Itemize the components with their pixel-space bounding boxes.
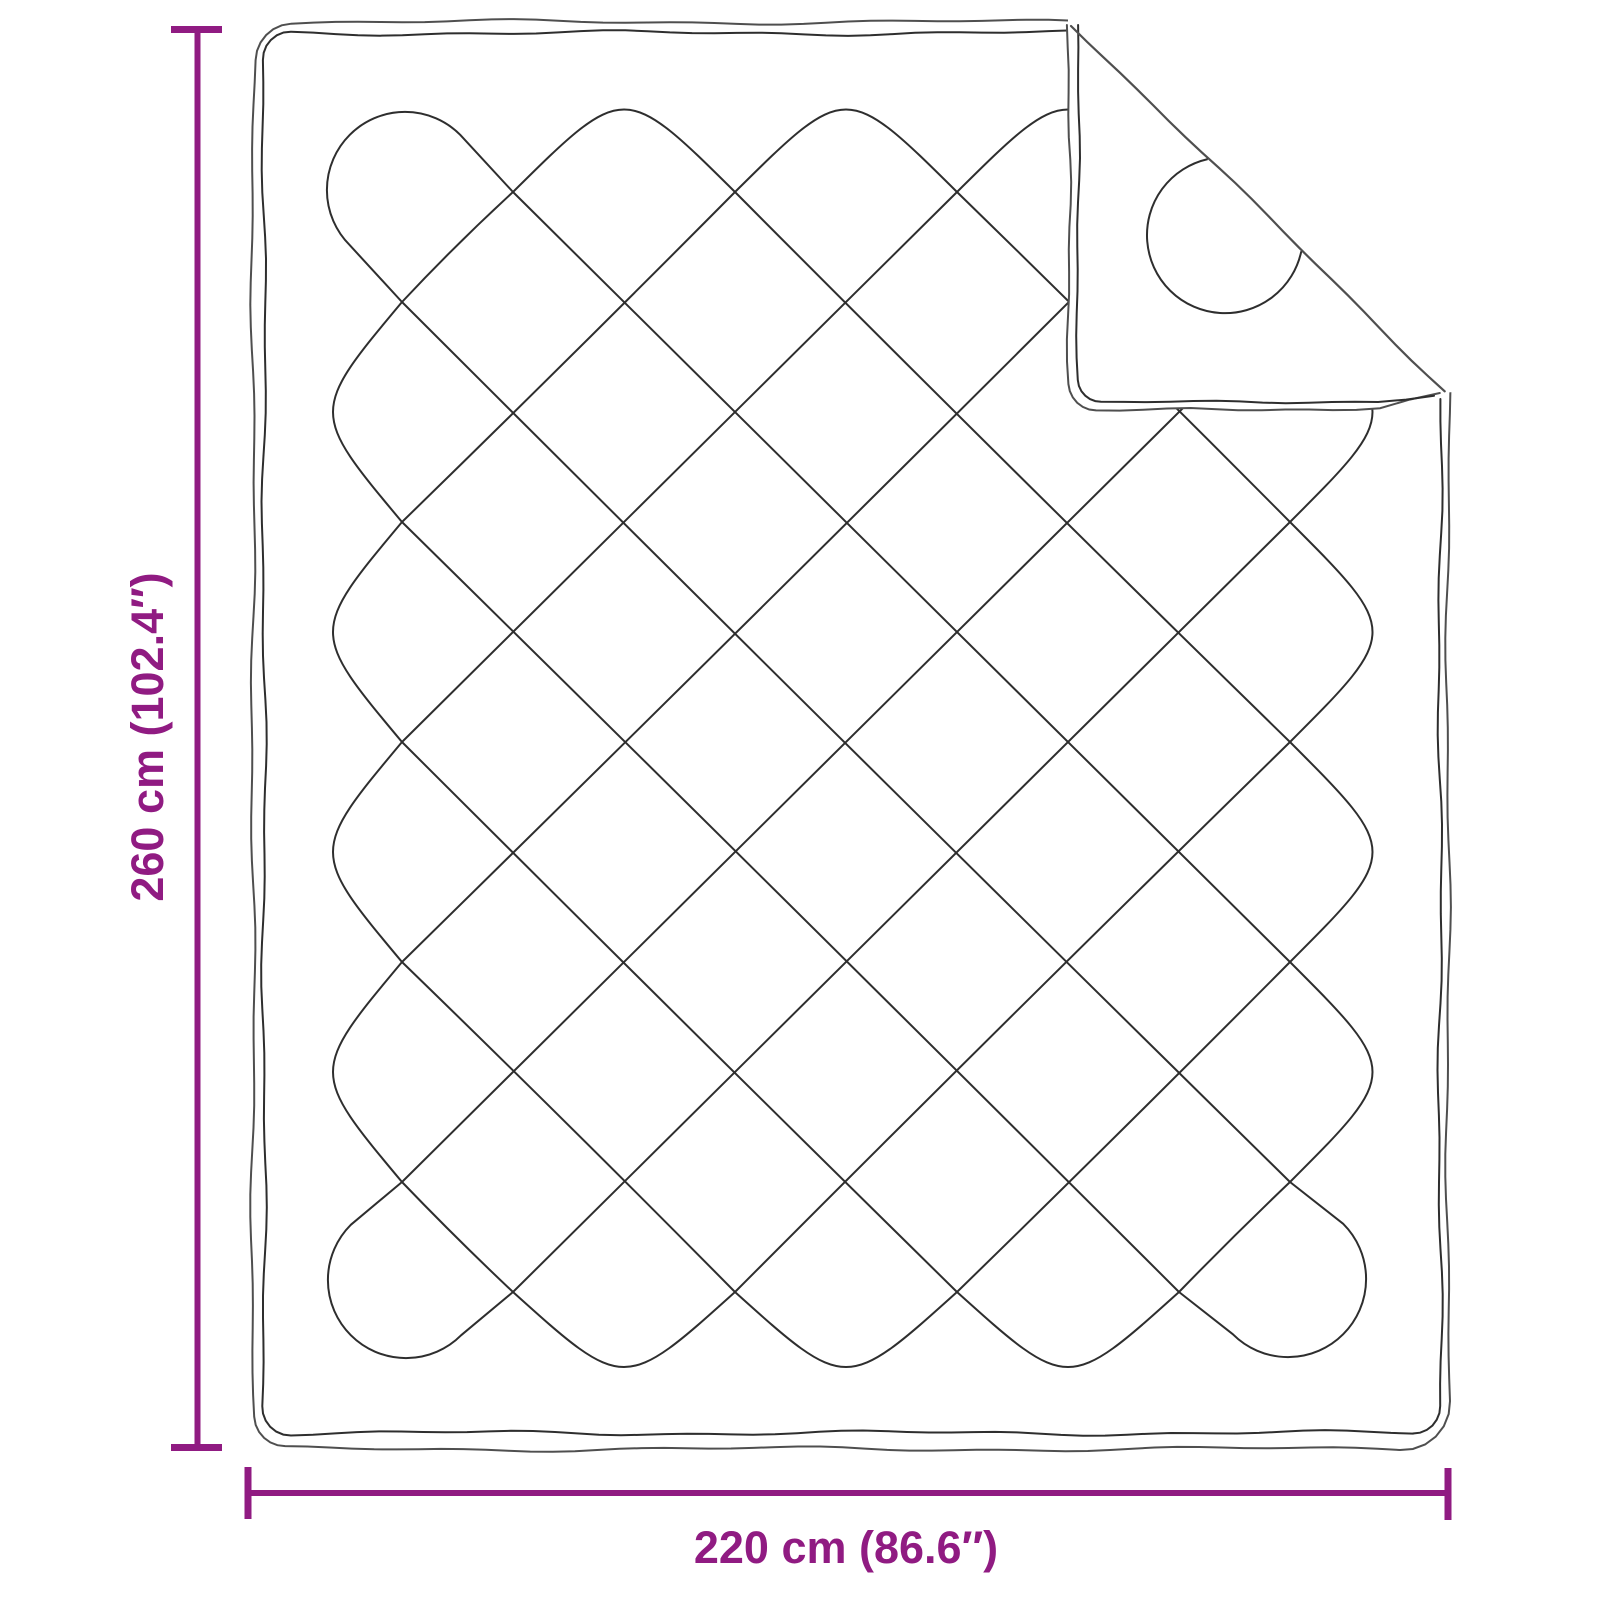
svg-text:260 cm (102.4″): 260 cm (102.4″) [122, 572, 173, 901]
svg-text:220 cm (86.6″): 220 cm (86.6″) [694, 1522, 998, 1573]
